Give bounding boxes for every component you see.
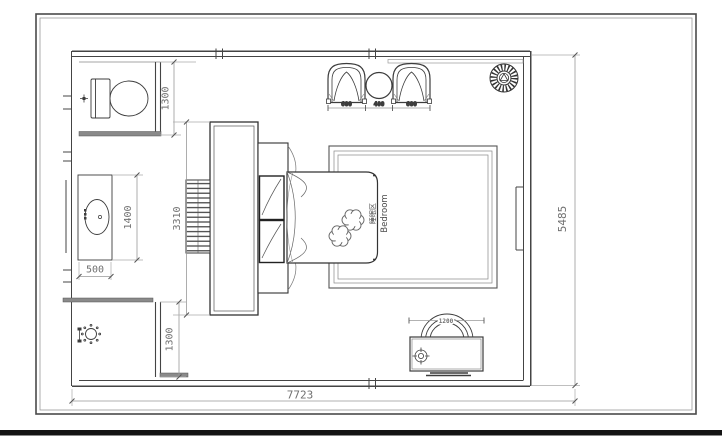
bed-body [287, 172, 378, 263]
bottom-rule [0, 430, 722, 436]
bed: 睡眠区 Bedroom [258, 143, 390, 293]
window-ledge-line [388, 60, 523, 64]
dim-vanity-1400: 1400 [123, 205, 134, 229]
dim-vanity-500: 500 [86, 265, 104, 276]
dim-desk-1200: 1200 [439, 318, 454, 325]
bed-label-zh: 睡眠区 [369, 203, 377, 224]
desk-dim: 1200 [409, 318, 484, 326]
shower-room: 1300 [63, 298, 188, 380]
seating-dims: 600 400 600 [328, 101, 430, 111]
seating-group: 600 400 600 [327, 64, 432, 112]
vanity-length-dim: 1400 [112, 173, 143, 263]
toilet-room-dim: 1300 [160, 60, 196, 138]
dim-room-7723: 7723 [287, 389, 314, 402]
toilet-room: 1300 [79, 60, 196, 138]
desk-group: 1200 [409, 314, 484, 376]
side-table-icon [366, 73, 392, 99]
toilet-icon [80, 79, 148, 118]
floor-plan-canvas: 1300 1400 500 [0, 0, 722, 438]
vanity-width-dim: 500 [77, 262, 114, 280]
dim-toilet-1300: 1300 [161, 86, 172, 110]
pillow [260, 176, 285, 263]
shower-head-icon [78, 324, 101, 343]
shower-room-dim: 1300 [160, 300, 186, 380]
room-depth-dim: 5485 [532, 53, 580, 389]
left-wall-ticks [63, 96, 72, 282]
dim-room-5485: 5485 [556, 206, 569, 233]
dim-armchair-right-600: 600 [406, 101, 417, 108]
armchair-right-icon [392, 64, 432, 104]
armchair-left-icon [327, 64, 367, 104]
dim-side-table-400: 400 [374, 101, 385, 108]
wardrobe-cabinet: 3310 [172, 120, 258, 318]
bed-label-en: Bedroom [380, 194, 390, 232]
ceiling-fan-icon [490, 64, 518, 92]
room-width-dim: 7723 [70, 389, 578, 407]
dim-shower-1300: 1300 [165, 327, 176, 351]
dim-wardrobe-3310: 3310 [172, 206, 183, 230]
desk [410, 337, 483, 371]
floor-plan-svg: 1300 1400 500 [0, 0, 722, 438]
dim-armchair-left-600: 600 [341, 101, 352, 108]
vanity: 1400 500 [77, 173, 144, 281]
